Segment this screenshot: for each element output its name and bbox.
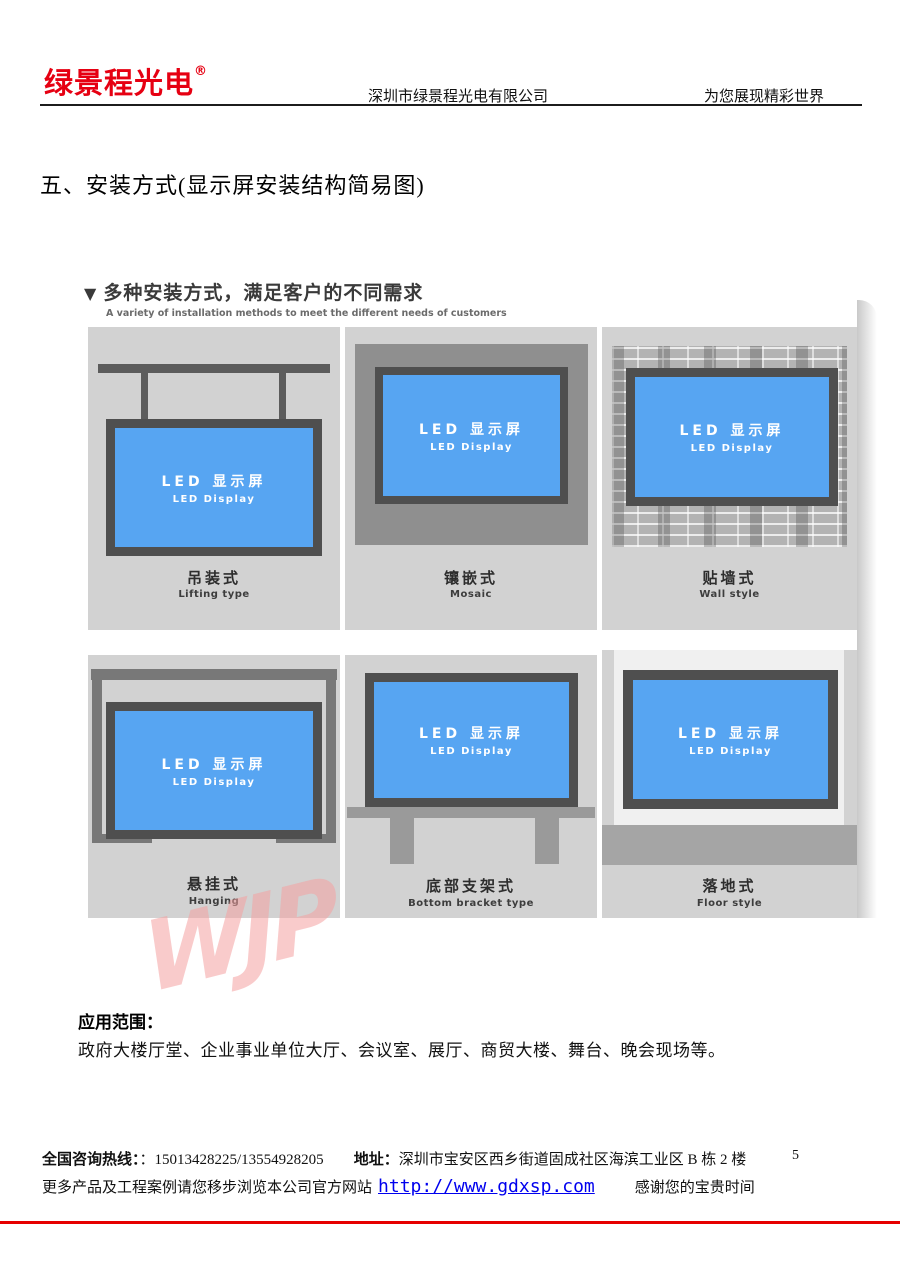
panel-subheading: A variety of installation methods to mee… [106,308,507,319]
led-display: LED 显示屏 LED Display [365,673,578,807]
method-name-en: Mosaic [345,589,597,600]
bottom-red-rule [0,1221,900,1224]
screen-label-cn: LED 显示屏 [419,723,524,743]
bracket-platform [347,807,595,818]
led-screen: LED 显示屏 LED Display [383,375,560,496]
panel-heading: ▼多种安装方式，满足客户的不同需求 [84,278,423,305]
method-cell-bottom-bracket: LED 显示屏 LED Display 底部支架式 Bottom bracket… [345,655,597,918]
hotline-value: ：15013428225/13554928205 [140,1152,324,1168]
logo-text: 绿景程光电 [44,66,194,100]
screen-label-en: LED Display [689,746,772,757]
method-cell-wall: LED 显示屏 LED Display 贴墙式 Wall style [602,327,857,630]
website-prompt-text: 更多产品及工程案例请您移步浏览本公司官方网站 [42,1180,372,1196]
led-display: LED 显示屏 LED Display [106,702,322,839]
header-divider [40,104,862,106]
company-logo: 绿景程光电® [44,60,208,102]
post-left [92,680,102,843]
screen-label-en: LED Display [430,746,513,757]
method-name-cn: 底部支架式 [345,875,597,896]
method-name-cn: 贴墙式 [602,567,857,588]
top-bar [91,669,337,680]
method-name-cn: 镶嵌式 [345,567,597,588]
triangle-marker-icon: ▼ [84,284,97,303]
method-name-cn: 吊装式 [88,567,340,588]
method-name-en: Floor style [602,898,857,909]
footer-line-2: 更多产品及工程案例请您移步浏览本公司官方网站http://www.gdxsp.c… [42,1176,862,1197]
section-title: 五、安装方式(显示屏安装结构简易图) [40,168,425,200]
thanks-text: 感谢您的宝贵时间 [635,1180,755,1196]
panel-heading-text: 多种安装方式，满足客户的不同需求 [103,282,423,304]
hanger-rod-right [279,372,286,421]
led-screen: LED 显示屏 LED Display [115,711,313,830]
led-display: LED 显示屏 LED Display [626,368,838,506]
ceiling-bar [98,364,330,373]
footer-line-1: 全国咨询热线：：15013428225/13554928205地址：深圳市宝安区… [42,1148,862,1169]
led-screen: LED 显示屏 LED Display [633,680,828,799]
page-number: 5 [792,1148,799,1164]
header-company-name: 深圳市绿景程光电有限公司 [368,85,548,106]
registered-trademark-icon: ® [194,64,208,79]
screen-label-en: LED Display [691,443,774,454]
method-name-en: Bottom bracket type [345,898,597,909]
document-page: 绿景程光电® 深圳市绿景程光电有限公司 为您展现精彩世界 五、安装方式(显示屏安… [0,0,900,1273]
screen-label-cn: LED 显示屏 [419,419,524,439]
screen-label-cn: LED 显示屏 [162,471,267,491]
application-scope-label: 应用范围： [78,1008,163,1033]
method-name-cn: 落地式 [602,875,857,896]
hotline-label: 全国咨询热线： [42,1152,140,1168]
header-slogan: 为您展现精彩世界 [704,85,824,106]
led-display: LED 显示屏 LED Display [106,419,322,556]
screen-label-en: LED Display [173,777,256,788]
address-label: 地址： [354,1152,399,1168]
led-display: LED 显示屏 LED Display [623,670,838,809]
led-screen: LED 显示屏 LED Display [115,428,313,547]
floor-band [602,825,857,865]
led-screen: LED 显示屏 LED Display [374,682,569,798]
bracket-leg-right [535,818,559,864]
hanger-rod-left [141,372,148,421]
application-scope-text: 政府大楼厅堂、企业事业单位大厅、会议室、展厅、商贸大楼、舞台、晚会现场等。 [78,1036,726,1061]
method-name-en: Lifting type [88,589,340,600]
panel-right-shadow [857,300,877,918]
method-cell-lifting: LED 显示屏 LED Display 吊装式 Lifting type [88,327,340,630]
screen-label-cn: LED 显示屏 [678,723,783,743]
led-screen: LED 显示屏 LED Display [635,377,829,497]
bracket-leg-left [390,818,414,864]
screen-label-en: LED Display [430,442,513,453]
method-name-en: Wall style [602,589,857,600]
method-cell-floor: LED 显示屏 LED Display 落地式 Floor style [602,650,857,918]
screen-label-cn: LED 显示屏 [680,420,785,440]
screen-label-cn: LED 显示屏 [162,754,267,774]
screen-label-en: LED Display [173,494,256,505]
method-cell-mosaic: LED 显示屏 LED Display 镶嵌式 Mosaic [345,327,597,630]
website-link[interactable]: http://www.gdxsp.com [378,1176,595,1197]
led-display: LED 显示屏 LED Display [375,367,568,504]
post-right [326,680,336,843]
address-value: 深圳市宝安区西乡街道固成社区海滨工业区 B 栋 2 楼 [399,1152,747,1168]
